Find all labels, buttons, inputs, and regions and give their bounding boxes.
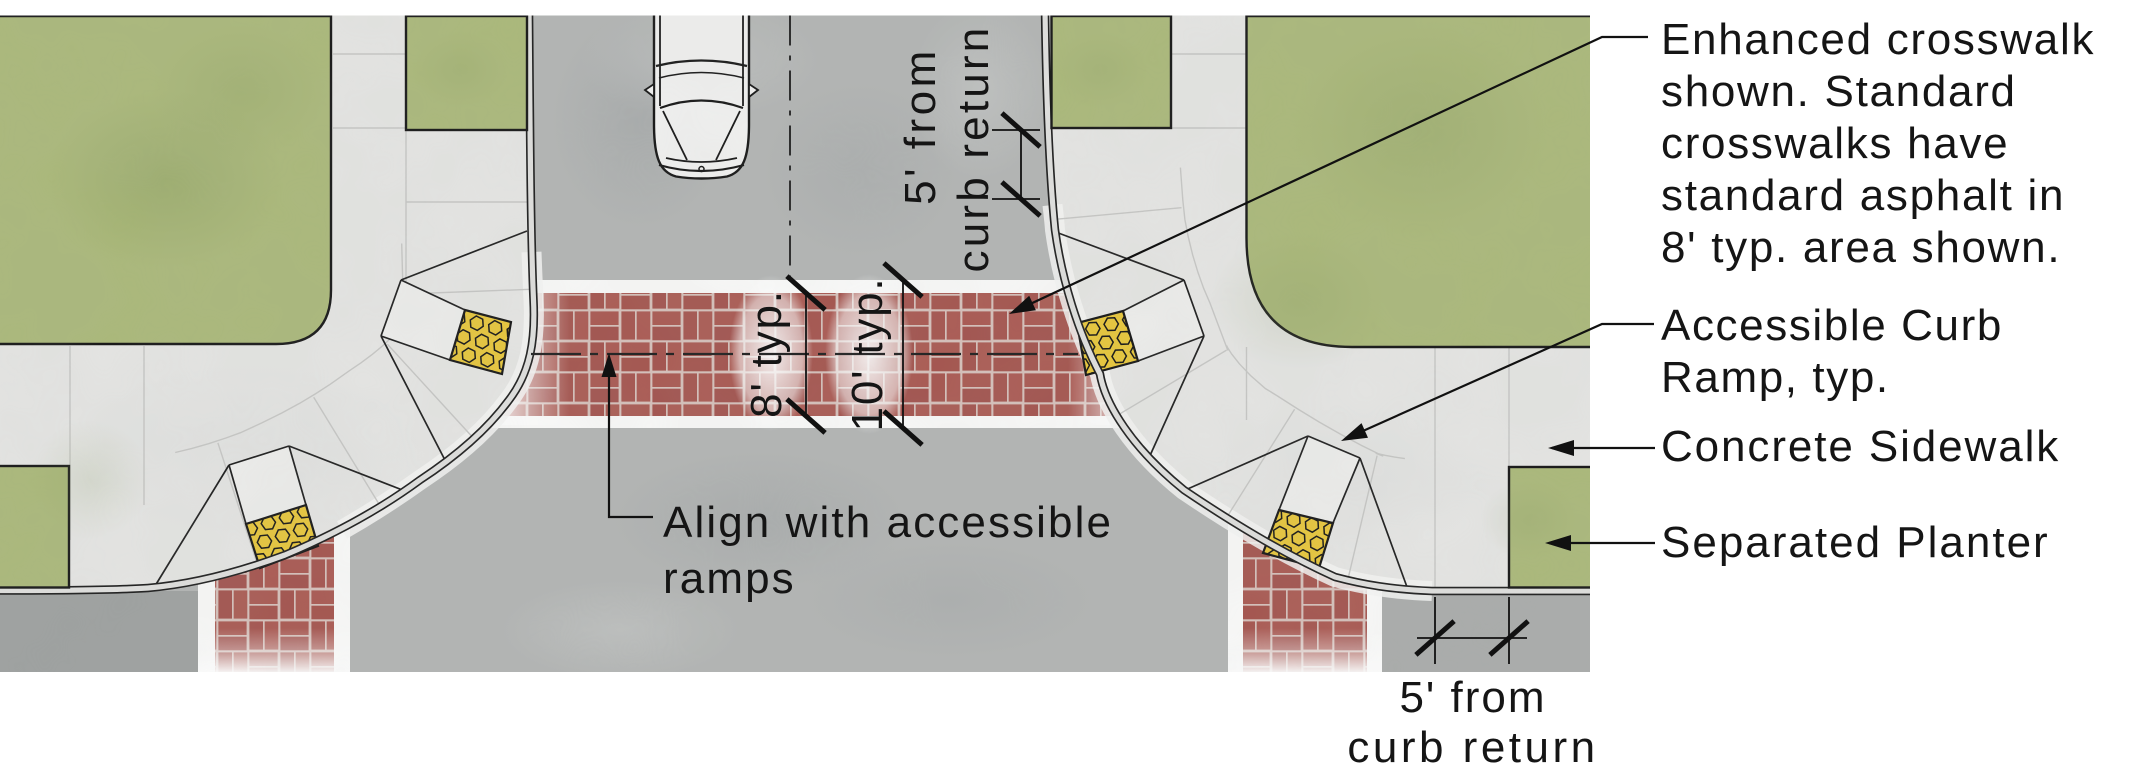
svg-text:Enhanced crosswalk: Enhanced crosswalk <box>1661 15 2095 64</box>
svg-text:crosswalks have: crosswalks have <box>1661 119 2009 168</box>
svg-text:Separated Planter: Separated Planter <box>1661 518 2050 567</box>
svg-text:5' from: 5' from <box>896 47 945 205</box>
svg-text:curb return: curb return <box>1347 723 1598 772</box>
svg-text:10' typ.: 10' typ. <box>843 277 892 432</box>
svg-text:standard asphalt in: standard asphalt in <box>1661 171 2065 220</box>
svg-text:8' typ.: 8' typ. <box>742 289 791 418</box>
svg-text:shown. Standard: shown. Standard <box>1661 67 2017 116</box>
svg-text:8' typ. area shown.: 8' typ. area shown. <box>1661 223 2061 272</box>
svg-text:5' from: 5' from <box>1399 673 1546 722</box>
svg-text:Accessible Curb: Accessible Curb <box>1661 301 2003 350</box>
svg-text:curb return: curb return <box>949 25 998 273</box>
svg-text:Align with accessible: Align with accessible <box>663 498 1113 547</box>
svg-text:Ramp, typ.: Ramp, typ. <box>1661 353 1890 402</box>
svg-text:ramps: ramps <box>663 554 796 603</box>
svg-text:Concrete Sidewalk: Concrete Sidewalk <box>1661 422 2060 471</box>
